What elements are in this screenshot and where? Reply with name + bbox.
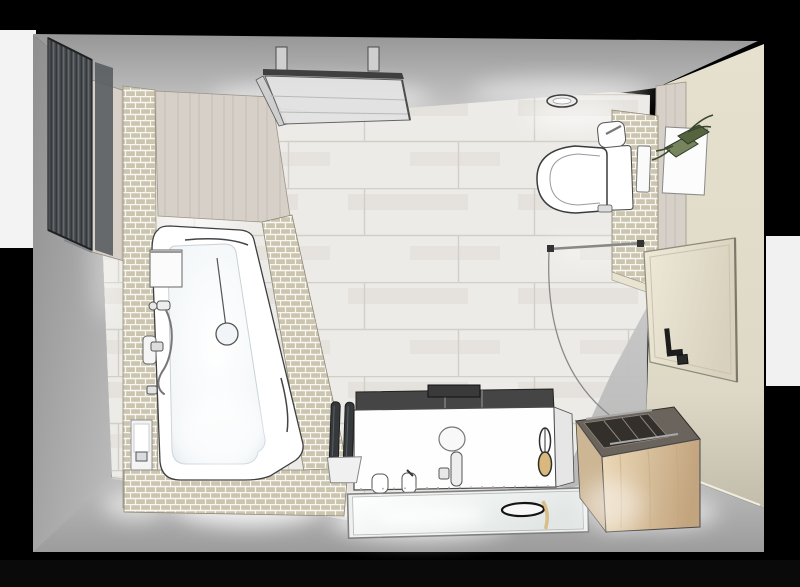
- bathroom-render-canvas: [0, 0, 800, 587]
- radiator: [48, 38, 92, 250]
- niche-towel: [134, 424, 149, 452]
- hose-elbow: [147, 386, 157, 394]
- ceiling-light-group: [547, 95, 577, 107]
- door-hinge-1: [547, 245, 554, 252]
- countertop-basin: [439, 427, 465, 451]
- drain: [216, 323, 238, 345]
- tub-shelf-box: [150, 250, 182, 287]
- bathtub-glow: [180, 394, 264, 466]
- niche-fitting: [136, 452, 147, 461]
- brush-holder: [327, 456, 362, 484]
- mirror-group: [347, 488, 588, 538]
- mirror-oval-ring: [502, 503, 544, 517]
- scene-svg: [0, 0, 800, 587]
- brush-1: [329, 402, 340, 462]
- toilet-hinge: [598, 205, 612, 212]
- faucet: [451, 452, 462, 486]
- door-hinge-2: [637, 240, 644, 247]
- flush-plate: [636, 146, 651, 192]
- vanity-side: [554, 407, 574, 487]
- tumbler: [372, 474, 388, 493]
- backdrop-band: [0, 560, 800, 587]
- hand-shower: [157, 301, 170, 310]
- shower-hook: [149, 302, 157, 310]
- door-leaf: [644, 238, 737, 382]
- roll-holder: [597, 121, 626, 149]
- backdrop-patch-left: [0, 30, 36, 248]
- soap-dispenser: [402, 473, 416, 493]
- tub-head-platform: [155, 91, 290, 222]
- accessory-brush: [539, 452, 552, 476]
- ceiling-light-inner: [553, 98, 571, 104]
- faucet-valve: [439, 468, 449, 479]
- panel-bracket-left: [276, 47, 287, 71]
- brush-2: [343, 402, 354, 462]
- panel-bracket-right: [368, 47, 379, 71]
- mixer-handle: [151, 342, 163, 351]
- panel-glass: [265, 76, 410, 124]
- bench-group: [576, 407, 700, 532]
- vanity-group: [354, 385, 574, 493]
- backdrop-patch-right: [766, 236, 800, 386]
- radiator-back-panel: [95, 62, 113, 256]
- tray-raised-box: [428, 385, 480, 397]
- bench-glow: [582, 479, 642, 531]
